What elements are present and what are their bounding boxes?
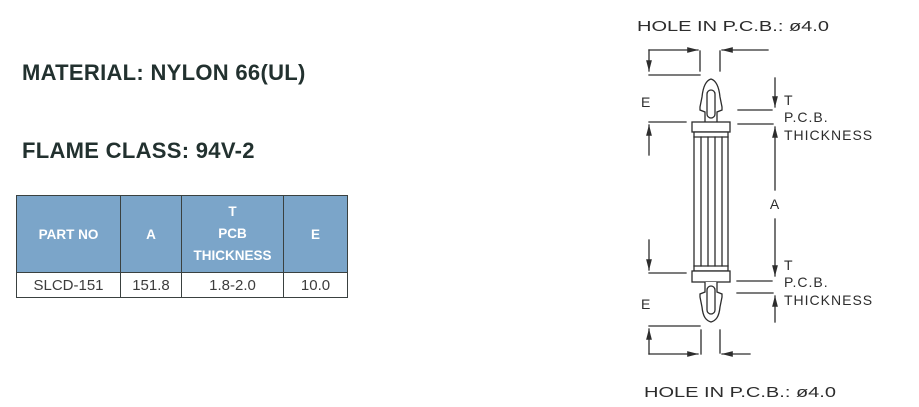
e-label-bottom: E (641, 296, 651, 312)
pcb-label-bottom: P.C.B. (784, 274, 829, 290)
bottom-t-dimension (737, 281, 775, 322)
datasheet-page: MATERIAL: NYLON 66(UL) FLAME CLASS: 94V-… (0, 0, 919, 407)
ribbed-body (694, 132, 728, 271)
top-e-dimension (649, 75, 700, 155)
top-flange (692, 122, 730, 132)
top-t-dimension (738, 78, 775, 190)
bottom-hole-dimension (649, 330, 750, 354)
t-label-top: T (784, 92, 794, 108)
thickness-label-top: THICKNESS (784, 127, 873, 143)
technical-drawing: HOLE IN P.C.B.: ø4.0 E T P.C.B. THICKNES… (0, 0, 919, 407)
spacer-outline (692, 79, 730, 322)
bottom-flange (692, 271, 730, 282)
bottom-clip-slot (707, 286, 715, 314)
e-label-top: E (641, 94, 651, 110)
bottom-e-dimension (649, 240, 700, 354)
thickness-label-bottom: THICKNESS (784, 292, 873, 308)
a-label: A (770, 196, 780, 212)
hole-note-top: HOLE IN P.C.B.: ø4.0 (637, 18, 829, 35)
top-clip-slot (707, 90, 715, 118)
hole-note-bottom: HOLE IN P.C.B.: ø4.0 (644, 384, 836, 401)
t-label-bottom: T (784, 257, 794, 273)
top-hole-dimension (649, 50, 768, 71)
pcb-label-top: P.C.B. (784, 109, 829, 125)
